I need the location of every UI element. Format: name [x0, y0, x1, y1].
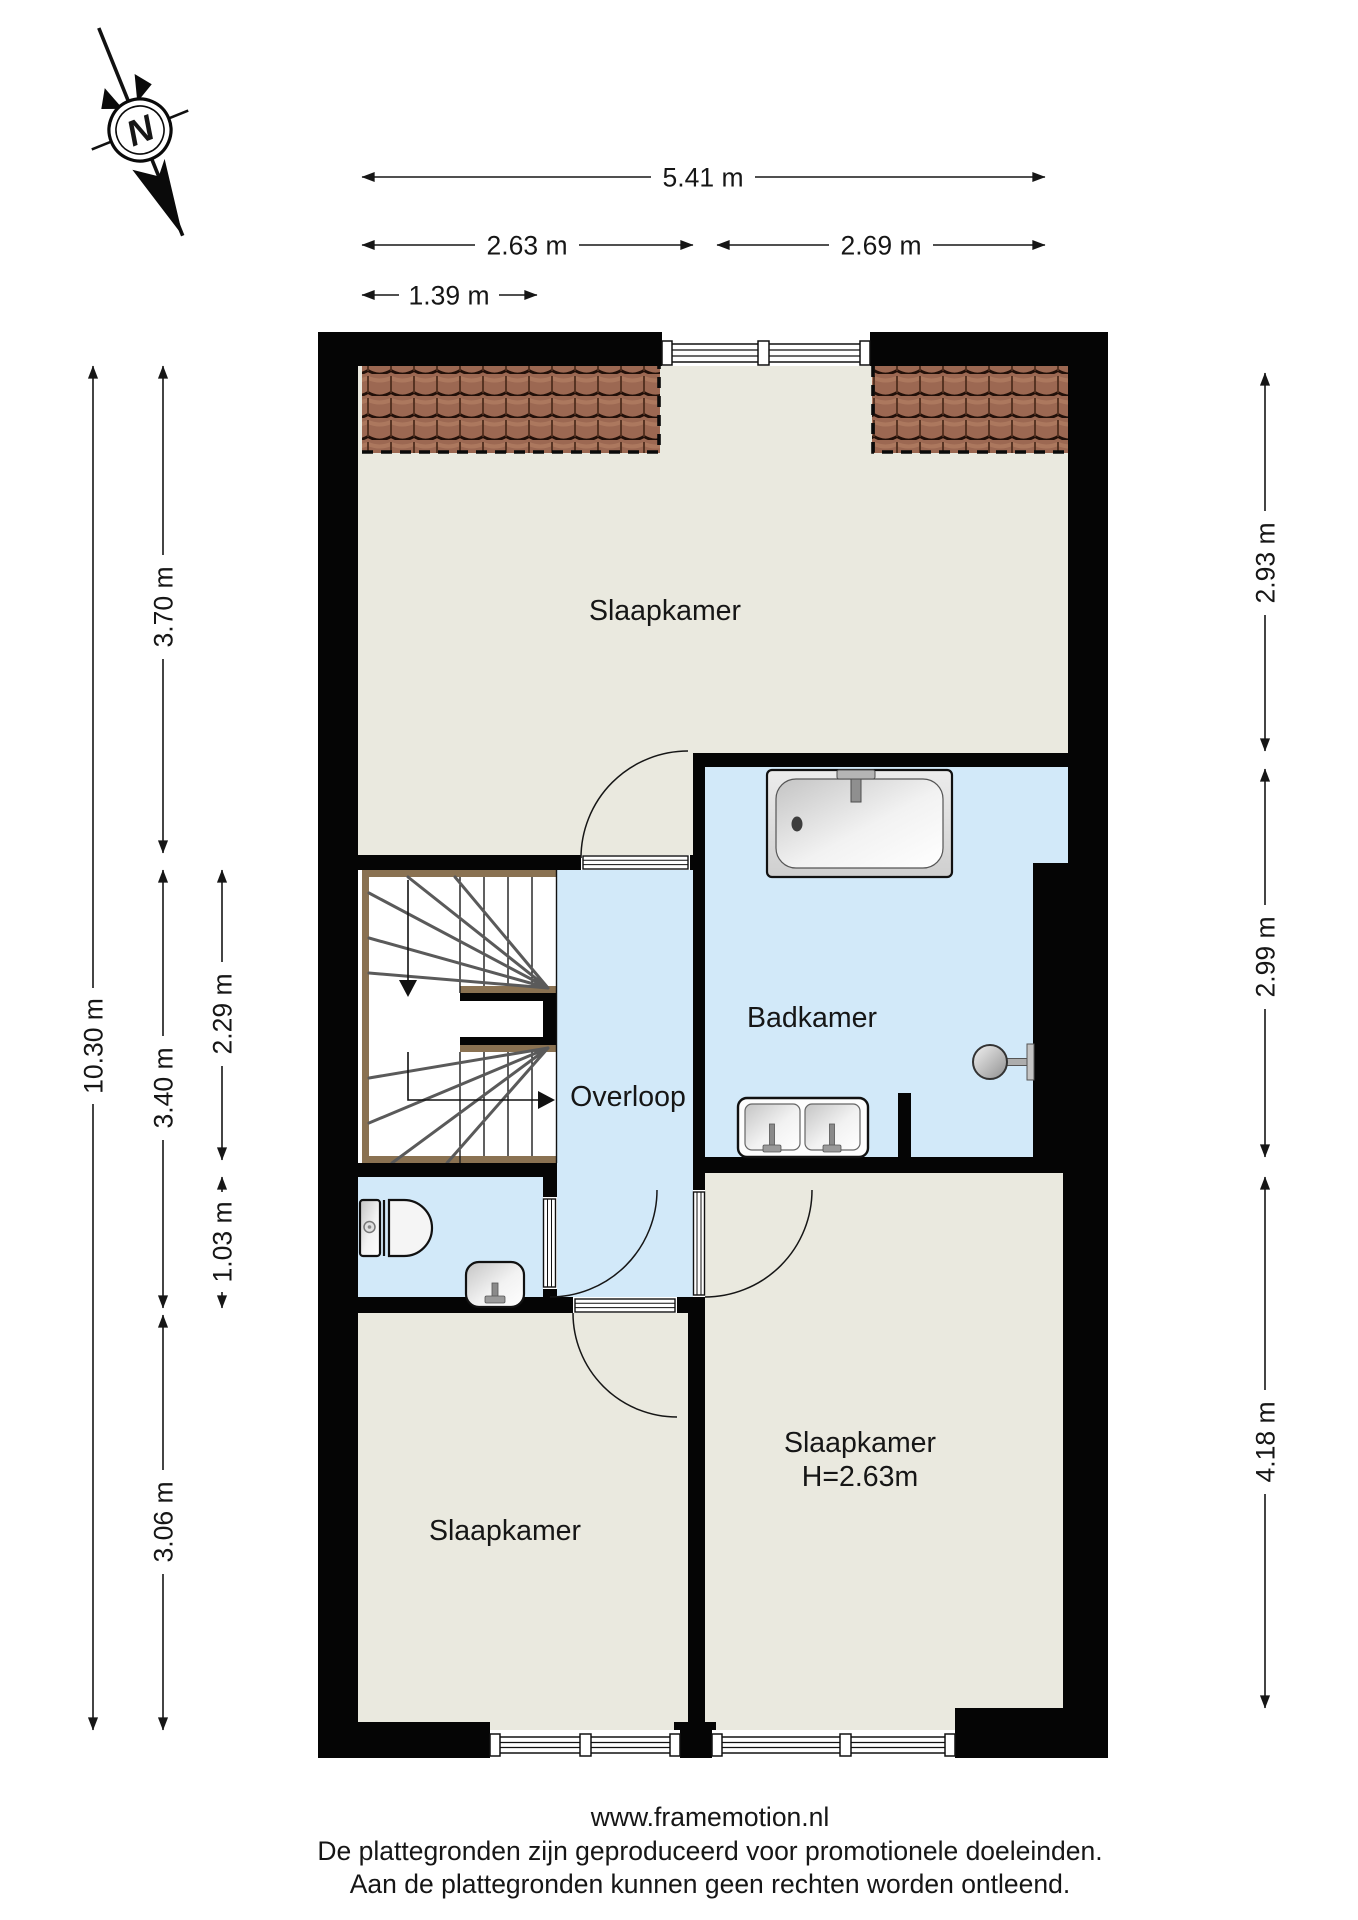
wall-right-shower-duct: [1033, 863, 1068, 1173]
label-overloop: Overloop: [570, 1081, 686, 1113]
stairs-void-wall-top: [460, 993, 557, 1001]
label-slaapkamer-top: Slaapkamer: [589, 595, 742, 627]
wall-outer-left: [318, 366, 358, 1730]
floor-badkamer-alcove: [1033, 767, 1068, 863]
bathtub-drain: [792, 817, 803, 832]
bathtub: [767, 770, 952, 877]
staircase: [362, 870, 557, 1163]
window-bottom-left: [490, 1730, 680, 1758]
dimension-left-wc: 1.03 m: [207, 1177, 237, 1308]
wall-bedroom-divider: [688, 1313, 705, 1730]
floorplan-page: N: [0, 0, 1358, 1920]
toilet: [360, 1200, 432, 1256]
wall-bottom-left-corner: [318, 1722, 490, 1758]
hand-basin: [466, 1262, 524, 1307]
wall-badkamer-top: [693, 753, 1068, 767]
label-slaapkamer-bottom-right-height: H=2.63m: [802, 1461, 918, 1493]
window-bottom-right: [712, 1730, 955, 1758]
window-top: [662, 332, 870, 366]
dim-label-left-span: 2.63 m: [486, 230, 567, 260]
dim-label-wc-height: 1.03 m: [207, 1201, 237, 1282]
label-slaapkamer-bottom-left: Slaapkamer: [429, 1515, 582, 1547]
dim-label-top-room-height: 3.70 m: [148, 566, 178, 647]
footer-website: www.framemotion.nl: [590, 1802, 830, 1832]
footer-disclaimer-line1: De plattegronden zijn geproduceerd voor …: [317, 1836, 1102, 1866]
dim-label-bottom-room-height: 3.06 m: [148, 1481, 178, 1562]
wall-badkamer-left: [693, 753, 705, 1157]
shower-partition-wall: [898, 1093, 911, 1157]
stairs-trim-top: [362, 870, 557, 877]
dim-label-right-top-room: 2.93 m: [1250, 522, 1280, 603]
dim-label-total-width: 5.41 m: [662, 162, 743, 192]
roof-overhang-right: [872, 366, 1068, 453]
dim-label-total-height: 10.30 m: [78, 998, 108, 1094]
wall-badkamer-bottom: [693, 1157, 1033, 1173]
label-slaapkamer-bottom-right: Slaapkamer: [784, 1427, 937, 1459]
wall-bottom-right-corner: [955, 1708, 1108, 1758]
stairs-void-wall-right: [543, 993, 557, 1045]
dim-label-stairs-height: 2.29 m: [207, 973, 237, 1054]
stairs-void-wall-bottom: [460, 1037, 557, 1045]
wall-stairs-bottom: [358, 1163, 557, 1177]
label-badkamer: Badkamer: [747, 1002, 877, 1034]
roof-overhang-left: [362, 366, 660, 453]
dim-label-right-bathroom: 2.99 m: [1250, 916, 1280, 997]
wall-right-bottom-lining: [1063, 1173, 1068, 1730]
wall-outer-right: [1068, 366, 1108, 1730]
stairs-trim-left: [362, 870, 369, 1163]
floorplan-drawing: N: [0, 0, 1358, 1920]
dim-label-right-bottom-room: 4.18 m: [1250, 1401, 1280, 1482]
dim-label-right-span: 2.69 m: [840, 230, 921, 260]
dim-label-middle-height: 3.40 m: [148, 1047, 178, 1128]
footer-disclaimer-line2: Aan de plattegronden kunnen geen rechten…: [350, 1869, 1070, 1899]
double-sink: [738, 1098, 868, 1157]
dim-label-partial-span: 1.39 m: [408, 280, 489, 310]
